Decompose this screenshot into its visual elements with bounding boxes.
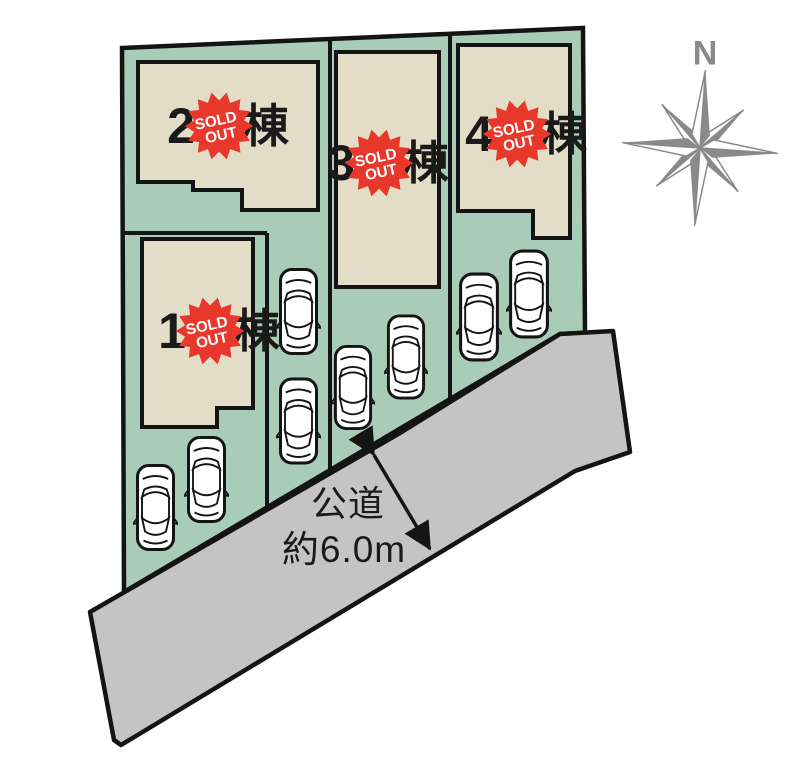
lot-1-label: 1 SOLD OUT 棟 [158,293,280,369]
sold-out-badge: SOLD OUT [479,96,555,172]
compass-cardinal-points [617,65,784,232]
car-icon [276,379,321,463]
car-icon [331,346,375,428]
site-plan-page: N 2 SOLD OUT 棟 1 SOLD OUT 棟 3 [0,0,800,767]
car-icon [133,466,178,550]
car-icon [456,274,502,360]
car-icon [276,270,321,354]
sold-out-badge: SOLD OUT [172,293,248,369]
sold-out-badge: SOLD OUT [181,88,257,164]
road-width-label: 約6.0m [282,519,406,573]
car-icon [506,251,552,337]
car-icon [184,438,229,522]
car-icon [384,316,428,398]
lot-3-label: 3 SOLD OUT 棟 [327,125,449,201]
lot-4-label: 4 SOLD OUT 棟 [465,96,587,172]
sold-out-badge: SOLD OUT [341,125,417,201]
north-label: N [693,35,718,74]
lot-2-label: 2 SOLD OUT 棟 [167,88,289,164]
